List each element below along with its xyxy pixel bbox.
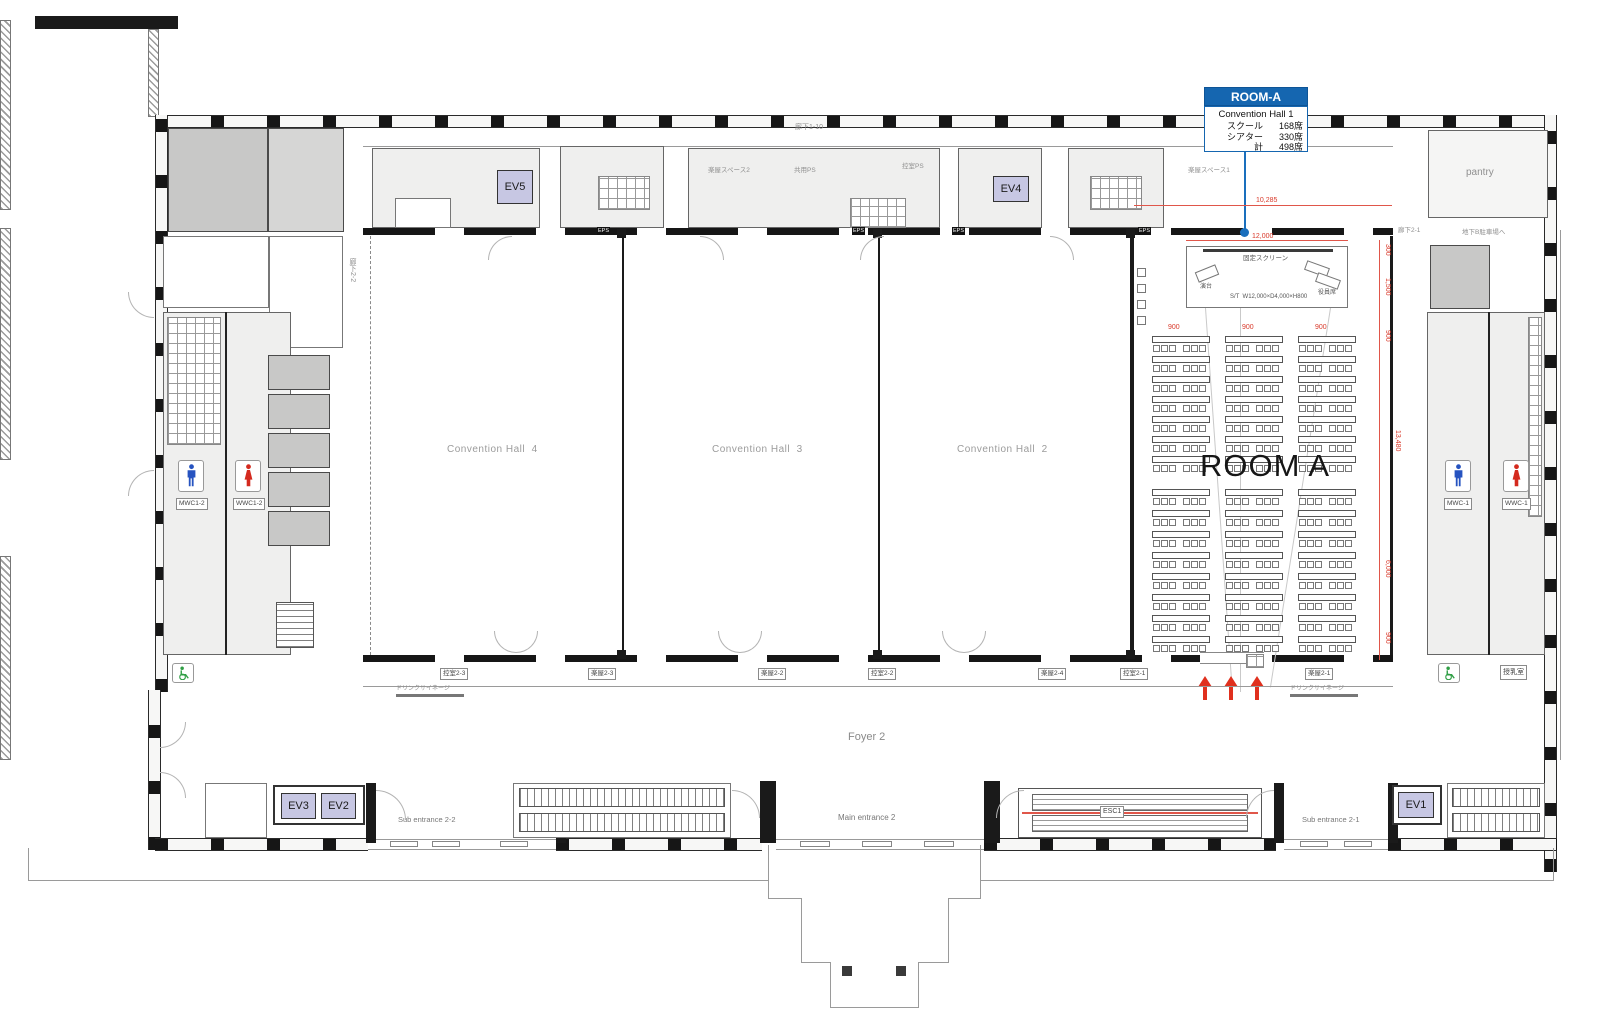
seat-chair <box>1153 405 1160 412</box>
men-toilet-icon <box>1445 460 1471 492</box>
seat-chair <box>1153 498 1160 505</box>
seat-chair <box>1307 385 1314 392</box>
seat-table <box>1152 436 1210 443</box>
seat-chair <box>1315 624 1322 631</box>
seat-chair <box>1264 519 1271 526</box>
callout-title: ROOM-A <box>1231 90 1281 104</box>
small-room-label: 楽屋2-1 <box>1305 668 1333 680</box>
seat-chair <box>1256 540 1263 547</box>
seat-chair <box>1161 561 1168 568</box>
seat-chair <box>1272 624 1279 631</box>
seat-chair <box>1169 445 1176 452</box>
callout-body: Convention Hall 1 スクール168席 シアター330席 計498… <box>1204 106 1308 152</box>
men-toilet-label: MWC-1 <box>1444 498 1472 510</box>
east-outer-line <box>1560 230 1561 760</box>
entry-arrow-stem <box>1203 686 1207 700</box>
seat-chair <box>1226 345 1233 352</box>
door-swing <box>160 722 186 748</box>
seat-chair <box>1256 624 1263 631</box>
door-swing <box>700 236 724 260</box>
seat-chair <box>1345 603 1352 610</box>
seat-chair <box>1307 365 1314 372</box>
stage-size-label: S/T W12,000×D4,000×H800 <box>1230 294 1307 300</box>
sub-entrance-22-label: Sub entrance 2-2 <box>398 816 456 824</box>
seat-chair <box>1307 425 1314 432</box>
seat-chair <box>1329 540 1336 547</box>
floor-plan: 廊下1-10 廊下2-2 MWC1-2 WWC1-2 pantry <box>0 0 1617 1024</box>
door-leaf <box>924 841 954 847</box>
seat-chair <box>1234 365 1241 372</box>
seat-chair <box>1242 519 1249 526</box>
corridor-2-2-label: 廊下2-2 <box>349 258 356 282</box>
wheelchair-pictogram <box>1442 666 1456 680</box>
seat-chair <box>1242 385 1249 392</box>
seat-chair <box>1315 603 1322 610</box>
seat-chair <box>1272 498 1279 505</box>
eps-chip: EPS <box>1138 227 1151 235</box>
seat-table <box>1298 436 1356 443</box>
seat-chair <box>1199 561 1206 568</box>
seat-chair <box>1264 365 1271 372</box>
corridor-1-10-label: 廊下1-10 <box>795 124 823 131</box>
seat-chair <box>1153 345 1160 352</box>
podium-label: 演台 <box>1200 284 1212 290</box>
seat-chair <box>1234 498 1241 505</box>
elevator-ev2: EV2 <box>321 793 356 819</box>
entry-arrow-stem <box>1229 686 1233 700</box>
seat-chair <box>1329 645 1336 652</box>
drink-signage-label: ドリンクサイネージ <box>1290 686 1344 692</box>
seat-chair <box>1226 405 1233 412</box>
seat-chair <box>1337 425 1344 432</box>
seat-table <box>1298 489 1356 496</box>
small-room-label: 控室2-2 <box>868 668 896 680</box>
seat-chair <box>1234 405 1241 412</box>
seat-table <box>1152 573 1210 580</box>
seat-table <box>1298 573 1356 580</box>
seat-chair <box>1256 519 1263 526</box>
seat-table <box>1152 615 1210 622</box>
dim-900: 900 <box>1168 324 1180 331</box>
seat-chair <box>1242 624 1249 631</box>
seat-chair <box>1226 603 1233 610</box>
south-wall-seg2 <box>556 838 762 851</box>
seat-chair <box>1329 365 1336 372</box>
door-swing <box>376 790 406 820</box>
esc1-label: ESC1 <box>1100 806 1124 818</box>
seat-chair <box>1299 345 1306 352</box>
plaza-step-h <box>768 898 802 899</box>
seat-table <box>1225 636 1283 643</box>
seat-chair <box>1153 582 1160 589</box>
ev3-label: EV3 <box>288 800 309 812</box>
seat-chair <box>1153 465 1160 472</box>
east-wall <box>1544 115 1557 872</box>
dim-900: 900 <box>1384 330 1391 342</box>
door-leaf <box>800 841 830 847</box>
small-room-label: 控室2-1 <box>1120 668 1148 680</box>
exterior-wall-hatch <box>0 20 11 210</box>
door-swing <box>732 790 760 818</box>
room-a-title: ROOM A <box>1200 448 1330 484</box>
seat-chair <box>1153 385 1160 392</box>
seat-chair <box>1329 445 1336 452</box>
seat-chair <box>1307 624 1314 631</box>
stair-flight <box>1452 813 1540 832</box>
seat-chair <box>1191 582 1198 589</box>
door-leaf <box>432 841 460 847</box>
seat-chair <box>1199 540 1206 547</box>
elevator-ev3: EV3 <box>281 793 316 819</box>
seat-chair <box>1234 540 1241 547</box>
seat-chair <box>1264 498 1271 505</box>
seat-chair <box>1345 445 1352 452</box>
ev4-label: EV4 <box>1001 183 1022 195</box>
seat-chair <box>1307 540 1314 547</box>
seat-chair <box>1242 582 1249 589</box>
seat-table <box>1225 416 1283 423</box>
gray-stack-room <box>268 433 330 468</box>
seat-chair <box>1345 561 1352 568</box>
seat-table <box>1152 531 1210 538</box>
foyer-label: Foyer 2 <box>848 732 885 743</box>
seat-chair <box>1337 603 1344 610</box>
seat-chair <box>1234 385 1241 392</box>
seat-chair <box>1242 345 1249 352</box>
seat-table <box>1298 531 1356 538</box>
left-anteroom <box>163 236 269 308</box>
seat-table <box>1152 336 1210 343</box>
door-swing <box>996 790 1024 818</box>
seat-chair <box>1345 345 1352 352</box>
callout-row: スクール168席 <box>1209 121 1303 132</box>
seat-chair <box>1161 645 1168 652</box>
column <box>617 650 626 659</box>
seat-chair <box>1199 365 1206 372</box>
locker-grid <box>598 176 650 210</box>
escalator-lane <box>1032 794 1248 811</box>
seat-chair <box>1199 425 1206 432</box>
main-entrance-2-label: Main entrance 2 <box>838 814 895 822</box>
seat-chair <box>1153 365 1160 372</box>
room-a-partition <box>1130 236 1134 655</box>
seat-chair <box>1345 645 1352 652</box>
seat-chair <box>1199 498 1206 505</box>
seat-chair <box>1153 425 1160 432</box>
seat-chair <box>1161 582 1168 589</box>
seat-chair <box>1307 519 1314 526</box>
terrace-edge <box>28 880 768 881</box>
seat-chair <box>1191 365 1198 372</box>
seat-chair <box>1169 603 1176 610</box>
pantry-label: pantry <box>1466 168 1494 178</box>
seat-chair <box>1329 624 1336 631</box>
seat-chair <box>1329 582 1336 589</box>
hikae-ps-label: 控室PS <box>902 164 924 171</box>
seat-chair <box>1299 540 1306 547</box>
seat-chair <box>1234 582 1241 589</box>
seat-chair <box>1199 345 1206 352</box>
seat-chair <box>1199 385 1206 392</box>
seat-chair <box>1272 365 1279 372</box>
door-swing <box>942 631 964 653</box>
seat-chair <box>1161 465 1168 472</box>
hall-partition-4-3 <box>622 236 624 655</box>
dim-900: 900 <box>1242 324 1254 331</box>
seat-chair <box>1299 603 1306 610</box>
stair-flight <box>519 788 725 807</box>
seat-chair <box>1299 519 1306 526</box>
seat-chair <box>1183 465 1190 472</box>
callout-row: シアター330席 <box>1209 132 1303 143</box>
seat-chair <box>1264 624 1271 631</box>
seat-chair <box>1191 624 1198 631</box>
seat-chair <box>1199 603 1206 610</box>
seat-chair <box>1169 645 1176 652</box>
seat-chair <box>1299 425 1306 432</box>
seat-chair <box>1161 385 1168 392</box>
dim-12000: 12,000 <box>1252 233 1273 240</box>
seat-chair <box>1329 519 1336 526</box>
top-left-link-wall <box>148 29 159 117</box>
seat-chair <box>1234 645 1241 652</box>
dim-extent-top <box>1134 205 1392 206</box>
small-room-label: 楽屋2-3 <box>588 668 616 680</box>
seat-chair <box>1337 519 1344 526</box>
seat-table <box>1225 573 1283 580</box>
seat-chair <box>1345 405 1352 412</box>
small-room-label: 楽屋2-4 <box>1038 668 1066 680</box>
plaza-step-v <box>918 962 919 1008</box>
exterior-wall-hatch <box>0 556 11 760</box>
side-chair <box>1137 300 1146 309</box>
callout-leader-dot <box>1240 228 1249 237</box>
seat-chair <box>1329 498 1336 505</box>
seat-chair <box>1315 385 1322 392</box>
ev2-label: EV2 <box>328 800 349 812</box>
locker-grid <box>850 198 906 228</box>
seat-chair <box>1272 561 1279 568</box>
terrace-edge-v <box>28 848 29 880</box>
room-a-east-wall <box>1390 236 1393 655</box>
seat-chair <box>1337 624 1344 631</box>
seat-chair <box>1256 582 1263 589</box>
seat-chair <box>1256 345 1263 352</box>
seat-chair <box>1169 540 1176 547</box>
seat-chair <box>1315 582 1322 589</box>
seat-table <box>1298 376 1356 383</box>
seat-chair <box>1264 582 1271 589</box>
seat-chair <box>1161 405 1168 412</box>
seat-chair <box>1337 561 1344 568</box>
door-swing <box>1050 236 1074 260</box>
backstage-inner <box>395 198 451 228</box>
seat-chair <box>1337 405 1344 412</box>
plaza-step-h <box>830 1007 919 1008</box>
seat-chair <box>1191 385 1198 392</box>
seat-chair <box>1183 385 1190 392</box>
seat-chair <box>1256 365 1263 372</box>
seat-table <box>1152 510 1210 517</box>
seat-chair <box>1234 624 1241 631</box>
seat-table <box>1152 356 1210 363</box>
seat-table <box>1298 356 1356 363</box>
seat-table <box>1298 396 1356 403</box>
gray-stack-room <box>268 394 330 429</box>
seat-chair <box>1264 561 1271 568</box>
seat-chair <box>1264 385 1271 392</box>
plaza-step-v <box>830 962 831 1008</box>
women-toilet-icon <box>1503 460 1529 492</box>
seat-chair <box>1169 624 1176 631</box>
seat-chair <box>1153 519 1160 526</box>
seat-chair <box>1337 582 1344 589</box>
seat-type: シアター <box>1227 132 1263 143</box>
seat-chair <box>1315 540 1322 547</box>
seat-chair <box>1234 345 1241 352</box>
seat-chair <box>1315 345 1322 352</box>
seat-chair <box>1183 445 1190 452</box>
seat-chair <box>1153 445 1160 452</box>
seat-chair <box>1242 645 1249 652</box>
door-swing <box>718 631 740 653</box>
side-chair <box>1137 316 1146 325</box>
small-room-label: 控室2-3 <box>440 668 468 680</box>
seat-chair <box>1329 405 1336 412</box>
side-chair <box>1137 284 1146 293</box>
seat-chair <box>1272 345 1279 352</box>
signage-bar <box>1290 694 1358 697</box>
seat-chair <box>1191 445 1198 452</box>
column <box>1126 229 1135 238</box>
gray-stack-room <box>268 472 330 507</box>
seat-chair <box>1234 561 1241 568</box>
seat-chair <box>1307 582 1314 589</box>
seat-chair <box>1337 385 1344 392</box>
seat-chair <box>1272 519 1279 526</box>
seat-chair <box>1226 498 1233 505</box>
seat-count: 168席 <box>1271 121 1303 132</box>
seat-chair <box>1337 645 1344 652</box>
south-wall-seg1 <box>155 838 368 851</box>
ev5-label: EV5 <box>505 181 526 193</box>
seat-chair <box>1256 425 1263 432</box>
sub-entrance-21-label: Sub entrance 2-1 <box>1302 816 1360 824</box>
seat-chair <box>1183 345 1190 352</box>
seat-chair <box>1329 385 1336 392</box>
seat-chair <box>1242 498 1249 505</box>
wheelchair-pictogram <box>176 666 190 680</box>
men-toilet-label: MWC1-2 <box>176 498 208 510</box>
dim-10285: 10,285 <box>1256 197 1277 204</box>
seat-type: スクール <box>1227 121 1263 132</box>
seat-chair <box>1191 519 1198 526</box>
callout-subtitle: Convention Hall 1 <box>1209 109 1303 120</box>
elevator-ev4: EV4 <box>993 176 1029 202</box>
seat-chair <box>1299 624 1306 631</box>
fixed-screen-bar <box>1203 249 1333 252</box>
seat-table <box>1298 336 1356 343</box>
seat-chair <box>1315 645 1322 652</box>
seat-chair <box>1191 425 1198 432</box>
seat-chair <box>1234 519 1241 526</box>
seat-chair <box>1169 465 1176 472</box>
women-toilet-label: WWC-1 <box>1502 498 1531 510</box>
seat-table <box>1225 615 1283 622</box>
exec-label: 役員席 <box>1318 290 1336 296</box>
seat-chair <box>1242 365 1249 372</box>
seat-chair <box>1307 561 1314 568</box>
dim-900: 900 <box>1384 632 1391 644</box>
eps-chip: EPS <box>952 227 965 235</box>
seat-chair <box>1329 345 1336 352</box>
seat-chair <box>1242 561 1249 568</box>
seat-chair <box>1315 365 1322 372</box>
north-wall <box>155 115 1557 128</box>
seat-table <box>1152 376 1210 383</box>
seat-table <box>1298 552 1356 559</box>
dim-6000: 6,000 <box>1384 560 1391 578</box>
door-swing <box>494 631 516 653</box>
man-pictogram <box>185 464 198 488</box>
seat-chair <box>1161 445 1168 452</box>
door-swing <box>128 470 154 496</box>
seat-chair <box>1337 345 1344 352</box>
seat-chair <box>1169 385 1176 392</box>
seat-chair <box>1226 519 1233 526</box>
seat-chair <box>1307 345 1314 352</box>
door-leaf <box>1300 841 1328 847</box>
seat-table <box>1298 636 1356 643</box>
column <box>617 229 626 238</box>
seat-table <box>1225 356 1283 363</box>
seat-chair <box>1345 519 1352 526</box>
seat-chair <box>1337 540 1344 547</box>
seat-table <box>1298 594 1356 601</box>
column <box>873 650 882 659</box>
toilet-divider <box>1488 312 1490 655</box>
seat-chair <box>1256 405 1263 412</box>
elevator-ev5: EV5 <box>497 170 533 204</box>
backstage2-label: 楽屋スペース2 <box>708 168 750 175</box>
door-leaf <box>862 841 892 847</box>
gray-room-right <box>1430 245 1490 309</box>
gray-room-topleft <box>168 128 268 232</box>
seat-chair <box>1161 425 1168 432</box>
seat-chair <box>1315 425 1322 432</box>
seat-chair <box>1264 345 1271 352</box>
seat-chair <box>1256 561 1263 568</box>
top-left-wing-wall <box>35 16 178 29</box>
anteroom-band-line <box>363 686 1393 687</box>
seat-chair <box>1299 365 1306 372</box>
door-swing <box>516 631 538 653</box>
seat-chair <box>1329 561 1336 568</box>
seat-chair <box>1242 425 1249 432</box>
entrance-pillar <box>366 783 376 843</box>
plaza-step-v <box>980 845 981 899</box>
seat-chair <box>1226 365 1233 372</box>
seat-table <box>1225 594 1283 601</box>
column <box>1126 650 1135 659</box>
door-swing <box>860 236 884 260</box>
terrace-edge <box>980 880 1554 881</box>
women-toilet-icon <box>235 460 261 492</box>
seat-chair <box>1264 425 1271 432</box>
callout-leader-line <box>1244 152 1246 230</box>
signage-bar <box>396 694 464 697</box>
toilet-stalls <box>1528 317 1542 517</box>
